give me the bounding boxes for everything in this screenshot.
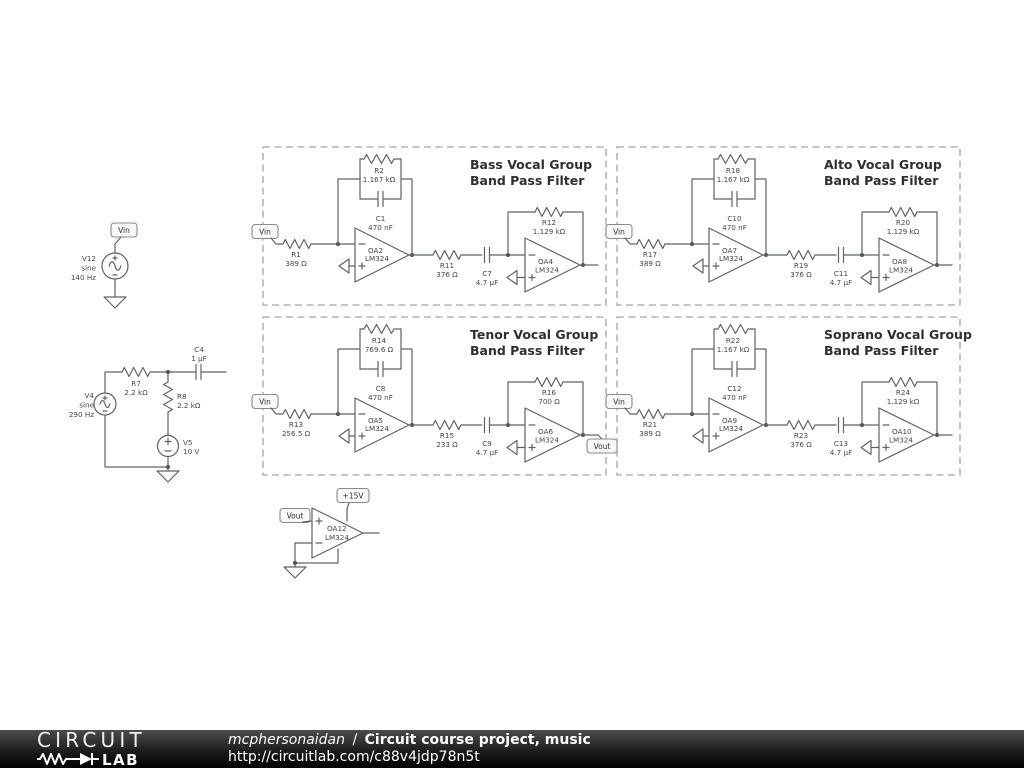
component-label: 376 Ω — [790, 270, 812, 279]
component-label: LM324 — [719, 254, 743, 263]
component-label: 4.7 µF — [830, 278, 852, 287]
resistor — [164, 382, 173, 412]
component-label: R23 — [794, 431, 808, 440]
filter-title: Soprano Vocal Group — [824, 327, 972, 342]
resistor — [283, 240, 311, 249]
wire — [338, 349, 360, 414]
component-label: 1.129 kΩ — [887, 397, 920, 406]
component-label: C7 — [482, 269, 492, 278]
component-label: 256.5 Ω — [282, 429, 311, 438]
component-label: V5 — [183, 438, 193, 447]
wire — [692, 349, 714, 414]
resistor — [364, 155, 394, 164]
component-label: 1 µF — [191, 354, 207, 363]
sine-wave-icon — [100, 400, 110, 407]
component-label: 1.167 kΩ — [717, 175, 750, 184]
resistor — [433, 251, 461, 260]
component-label: 700 Ω — [538, 397, 560, 406]
resistor — [364, 325, 394, 334]
wire — [563, 382, 583, 435]
component-label: 470 nF — [722, 393, 747, 402]
component-label: LM324 — [365, 254, 389, 263]
vout-flag-label: Vout — [594, 442, 611, 451]
ground-icon — [861, 271, 871, 285]
component-label: 1.167 kΩ — [717, 345, 750, 354]
wire — [755, 179, 766, 255]
ground-icon — [507, 271, 517, 285]
wire — [105, 372, 122, 393]
ground-icon — [104, 297, 126, 308]
component-label: LM324 — [889, 266, 913, 275]
component-label: 2.2 kΩ — [124, 388, 148, 397]
component-label: 10 V — [183, 447, 199, 456]
component-label: 4.7 µF — [476, 278, 498, 287]
wire — [347, 503, 349, 521]
component-label: R19 — [794, 261, 809, 270]
footer-text-block: mcphersonaidan / Circuit course project,… — [228, 732, 591, 766]
component-label: R13 — [289, 420, 303, 429]
ground-icon — [284, 567, 306, 578]
wire — [755, 349, 766, 425]
component-label: R18 — [726, 166, 741, 175]
component-label: C12 — [727, 384, 741, 393]
component-label: R20 — [896, 218, 911, 227]
component-label: C1 — [376, 214, 386, 223]
resistor — [637, 410, 665, 419]
logo-circuit-text: CIRCUIT — [37, 730, 146, 752]
vin-flag-label: Vin — [118, 226, 130, 235]
component-label: R17 — [643, 250, 657, 259]
resistor — [889, 378, 917, 387]
schematic-page: Bass Vocal GroupBand Pass FilterVinR1389… — [0, 0, 1024, 768]
component-label: 2.2 kΩ — [177, 401, 201, 410]
component-label: 1.129 kΩ — [533, 227, 566, 236]
supply-flag-label: +15V — [343, 492, 365, 501]
component-label: 769.6 Ω — [365, 345, 394, 354]
component-label: 1.167 kΩ — [363, 175, 396, 184]
component-label: 389 Ω — [285, 259, 307, 268]
share-url[interactable]: http://circuitlab.com/c88v4jdp78n5t — [228, 749, 591, 766]
component-label: R1 — [291, 250, 301, 259]
component-label: R11 — [440, 261, 454, 270]
wire — [338, 179, 360, 244]
component-label: 376 Ω — [436, 270, 458, 279]
ground-icon — [861, 441, 871, 455]
ground-icon — [693, 259, 703, 273]
component-label: 140 Hz — [71, 273, 96, 282]
wire — [917, 382, 937, 435]
resistor — [787, 421, 815, 430]
wire — [295, 543, 338, 563]
component-label: 376 Ω — [790, 440, 812, 449]
sine-wave-icon — [109, 262, 121, 270]
filter-block: Tenor Vocal GroupBand Pass FilterVinR132… — [252, 317, 617, 475]
component-label: OA12 — [327, 524, 347, 533]
resistor — [718, 325, 748, 334]
filter-block: Alto Vocal GroupBand Pass FilterVinR1738… — [606, 147, 960, 305]
ground-icon — [339, 259, 349, 273]
component-label: 4.7 µF — [476, 448, 498, 457]
byline-separator: / — [352, 732, 357, 748]
resistor — [889, 208, 917, 217]
resistor — [718, 155, 748, 164]
circuitlab-logo: CIRCUIT LAB — [36, 730, 196, 768]
filter-title: Alto Vocal Group — [824, 157, 942, 172]
component-label: V12 — [82, 254, 96, 263]
component-label: C4 — [194, 345, 204, 354]
ground-icon — [339, 429, 349, 443]
vout-flag-label: Vout — [287, 512, 304, 521]
filter-title: Band Pass Filter — [824, 173, 939, 188]
filter-title: Band Pass Filter — [470, 173, 585, 188]
component-label: 233 Ω — [436, 440, 458, 449]
component-label: R2 — [374, 166, 384, 175]
resistor — [122, 368, 150, 377]
component-label: R12 — [542, 218, 556, 227]
ground-icon — [693, 429, 703, 443]
filter-title: Tenor Vocal Group — [470, 327, 598, 342]
component-label: C9 — [482, 439, 492, 448]
ground-icon — [507, 441, 517, 455]
wire — [508, 382, 535, 425]
component-label: C13 — [834, 439, 848, 448]
schematic-canvas: Bass Vocal GroupBand Pass FilterVinR1389… — [0, 0, 1024, 730]
vin-flag-label: Vin — [259, 228, 271, 237]
wire — [917, 212, 937, 265]
component-label: 4.7 µF — [830, 448, 852, 457]
logo-lab-text: LAB — [102, 751, 139, 768]
component-label: sine — [81, 264, 96, 273]
ground-icon — [157, 471, 179, 482]
footer-byline: mcphersonaidan / Circuit course project,… — [228, 732, 591, 749]
component-label: LM324 — [535, 436, 559, 445]
component-label: LM324 — [535, 266, 559, 275]
component-label: LM324 — [365, 424, 389, 433]
component-label: R15 — [440, 431, 454, 440]
component-label: R22 — [726, 336, 740, 345]
component-label: 470 nF — [722, 223, 747, 232]
component-label: 389 Ω — [639, 259, 661, 268]
component-label: 290 Hz — [69, 410, 94, 419]
resistor — [637, 240, 665, 249]
diode-icon — [80, 753, 92, 765]
component-label: R8 — [177, 392, 187, 401]
component-label: R14 — [372, 336, 387, 345]
vin-flag-label: Vin — [613, 398, 625, 407]
author-name[interactable]: mcphersonaidan — [228, 732, 345, 748]
wire — [115, 237, 121, 253]
resistor-icon — [37, 754, 80, 764]
wire — [508, 212, 535, 255]
resistor — [433, 421, 461, 430]
wire — [401, 179, 412, 255]
component-label: 470 nF — [368, 223, 393, 232]
component-label: sine — [79, 401, 94, 410]
component-label: R24 — [896, 388, 911, 397]
component-label: LM324 — [719, 424, 743, 433]
filter-title: Band Pass Filter — [824, 343, 939, 358]
component-label: LM324 — [889, 436, 913, 445]
component-label: V4 — [85, 391, 95, 400]
component-label: R16 — [542, 388, 557, 397]
component-label: C10 — [727, 214, 742, 223]
component-label: C11 — [834, 269, 848, 278]
filter-title: Bass Vocal Group — [470, 157, 592, 172]
resistor — [283, 410, 311, 419]
wire — [598, 435, 602, 439]
component-label: 470 nF — [368, 393, 393, 402]
footer-bar: CIRCUIT LAB mcphersonaidan / Circuit cou… — [0, 730, 1024, 768]
resistor — [535, 208, 563, 217]
component-label: 389 Ω — [639, 429, 661, 438]
filter-block: Soprano Vocal GroupBand Pass FilterVinR2… — [606, 317, 972, 475]
filter-block: Bass Vocal GroupBand Pass FilterVinR1389… — [252, 147, 606, 305]
component-label: R21 — [643, 420, 657, 429]
filter-title: Band Pass Filter — [470, 343, 585, 358]
wire — [862, 382, 889, 425]
wire — [563, 212, 583, 265]
resistor — [535, 378, 563, 387]
project-title: Circuit course project, music — [365, 732, 591, 748]
wire — [862, 212, 889, 255]
component-label: 1.129 kΩ — [887, 227, 920, 236]
resistor — [787, 251, 815, 260]
component-label: C8 — [376, 384, 386, 393]
wire — [401, 349, 412, 425]
wire — [692, 179, 714, 244]
component-label: LM324 — [325, 533, 349, 542]
component-label: R7 — [131, 379, 141, 388]
vin-flag-label: Vin — [613, 228, 625, 237]
vin-flag-label: Vin — [259, 398, 271, 407]
